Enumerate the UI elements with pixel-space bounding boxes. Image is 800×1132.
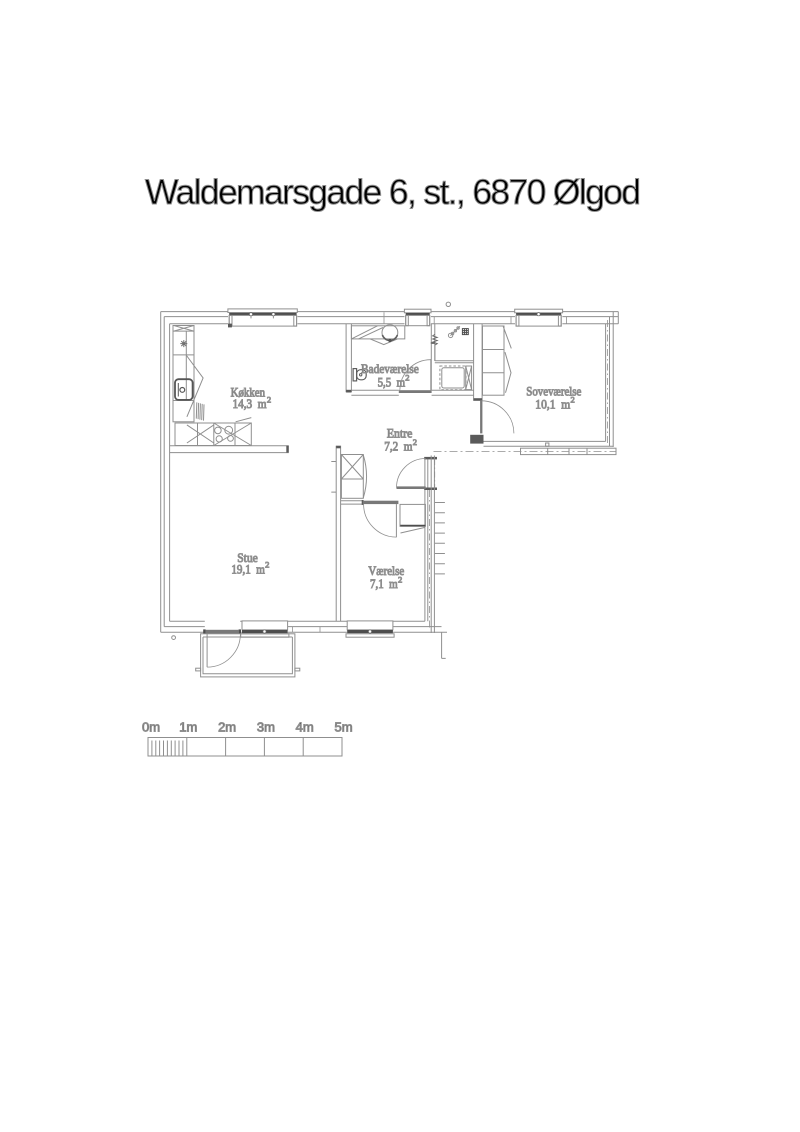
svg-text:10,1 m: 10,1 m — [535, 396, 570, 411]
svg-text:5m: 5m — [334, 720, 352, 735]
svg-text:2: 2 — [265, 560, 269, 570]
svg-text:3m: 3m — [257, 720, 275, 735]
svg-text:1m: 1m — [179, 720, 197, 735]
svg-text:2m: 2m — [218, 720, 236, 735]
svg-text:2: 2 — [405, 373, 409, 383]
svg-text:19,1 m: 19,1 m — [231, 561, 265, 576]
svg-text:5,5 m: 5,5 m — [378, 374, 406, 389]
svg-text:2: 2 — [398, 574, 402, 584]
svg-text:Waldemarsgade 6, st., 6870 Ølg: Waldemarsgade 6, st., 6870 Ølgod — [145, 172, 641, 212]
svg-text:2: 2 — [267, 395, 271, 405]
svg-text:7,1 m: 7,1 m — [370, 576, 398, 591]
svg-text:2: 2 — [413, 437, 417, 447]
svg-text:2: 2 — [571, 395, 575, 405]
svg-text:4m: 4m — [296, 720, 314, 735]
svg-text:7,2 m: 7,2 m — [384, 439, 412, 454]
svg-text:0m: 0m — [142, 720, 160, 735]
svg-text:14,3 m: 14,3 m — [233, 396, 267, 411]
